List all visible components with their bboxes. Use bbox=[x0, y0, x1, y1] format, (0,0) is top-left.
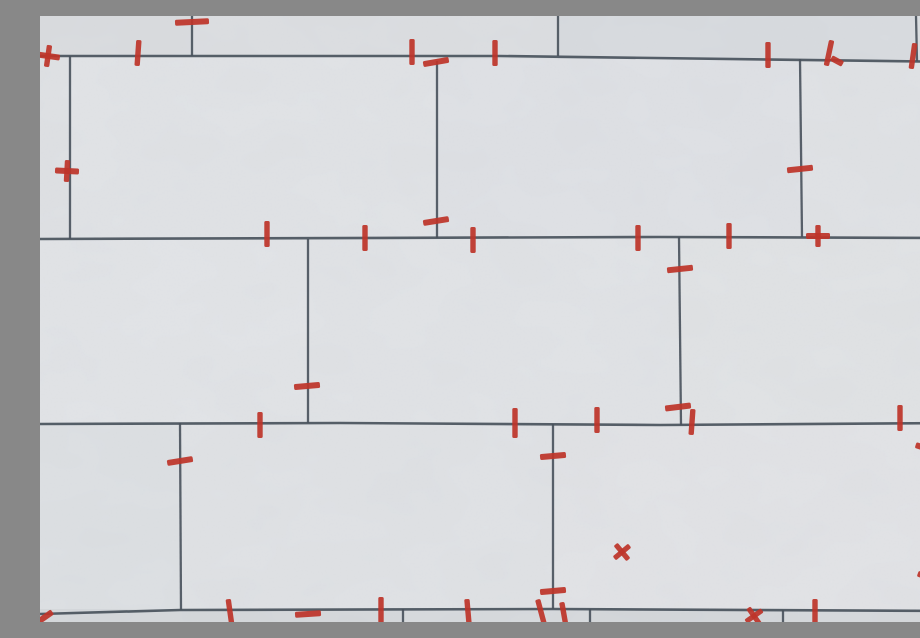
tile-spacer-tick-vertical bbox=[512, 408, 517, 438]
spacer-bar bbox=[264, 221, 269, 247]
spacer-bar bbox=[594, 407, 599, 433]
spacer-bar bbox=[492, 40, 497, 66]
spacer-bar bbox=[635, 225, 640, 251]
tiled-wall-photo bbox=[40, 16, 920, 622]
tile-spacer-tick-vertical bbox=[897, 405, 902, 431]
grout-line-vertical bbox=[916, 16, 917, 61]
tile-spacer-tick-vertical bbox=[594, 407, 599, 433]
spacer-bar bbox=[409, 39, 414, 65]
tiled-wall-scene bbox=[40, 16, 920, 622]
grout-line-horizontal bbox=[40, 423, 920, 425]
tile-spacer-tick-vertical bbox=[470, 227, 475, 253]
spacer-bar bbox=[55, 167, 79, 174]
tile-spacer-tick-vertical bbox=[492, 40, 497, 66]
tile-spacer-tick-vertical bbox=[378, 597, 383, 622]
spacer-bar bbox=[806, 233, 830, 239]
spacer-bar bbox=[378, 597, 383, 622]
grout-line-horizontal bbox=[40, 237, 920, 239]
tile-spacer-tick-vertical bbox=[765, 42, 770, 68]
spacer-bar bbox=[812, 599, 817, 622]
spacer-bar bbox=[897, 405, 902, 431]
spacer-bar bbox=[362, 225, 367, 251]
grout-line-vertical bbox=[180, 423, 181, 610]
spacer-bar bbox=[470, 227, 475, 253]
tile-spacer-tick-vertical bbox=[362, 225, 367, 251]
tile-spacer-tick-vertical bbox=[726, 223, 731, 249]
tile-spacer-tick-vertical bbox=[409, 39, 414, 65]
tile-spacer-tick-vertical bbox=[264, 221, 269, 247]
tile-spacer-tick-vertical bbox=[812, 599, 817, 622]
tile-texture-grain bbox=[40, 16, 920, 622]
tile-spacer-tick-vertical bbox=[257, 412, 262, 438]
spacer-bar bbox=[765, 42, 770, 68]
tile-spacer-tick-vertical bbox=[635, 225, 640, 251]
spacer-bar bbox=[257, 412, 262, 438]
spacer-bar bbox=[512, 408, 517, 438]
spacer-bar bbox=[726, 223, 731, 249]
